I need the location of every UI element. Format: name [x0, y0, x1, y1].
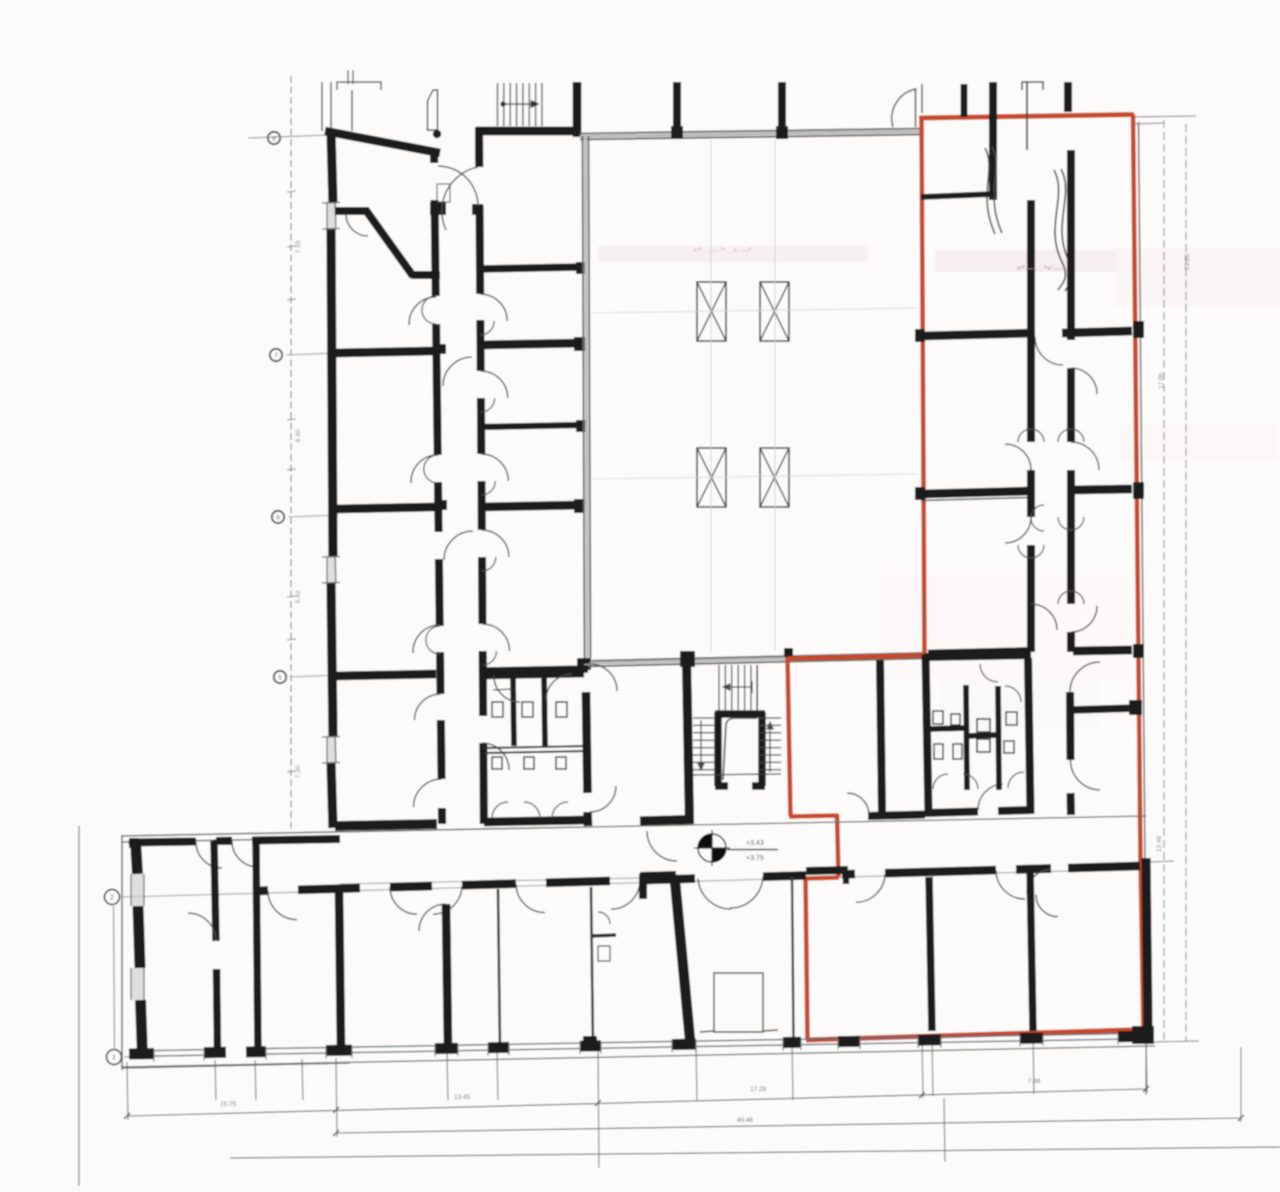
svg-text:29.05: 29.05: [1184, 253, 1191, 270]
svg-text:7: 7: [274, 352, 278, 359]
svg-text:1: 1: [112, 1054, 116, 1061]
svg-text:15.75: 15.75: [220, 1101, 237, 1108]
svg-text:17.28: 17.28: [750, 1086, 767, 1093]
svg-text:7.48: 7.48: [1028, 1078, 1041, 1085]
svg-text:17.05: 17.05: [1158, 372, 1165, 389]
svg-text:6: 6: [276, 514, 280, 521]
svg-text:+3.43: +3.43: [746, 840, 764, 847]
svg-text:+3.75: +3.75: [746, 855, 764, 862]
svg-text:7.30: 7.30: [295, 765, 302, 778]
svg-text:×º′—·…º×′—·: ×º′—·…º×′—·: [1016, 264, 1064, 273]
svg-text:13.46: 13.46: [1156, 835, 1163, 852]
svg-text:13.45: 13.45: [454, 1094, 471, 1101]
svg-text:45.46: 45.46: [737, 1117, 754, 1124]
svg-text:×º′…—·′º…×·—º: ×º′…—·′º…×·—º: [693, 246, 752, 255]
svg-text:5.40: 5.40: [295, 590, 302, 603]
svg-text:7.20: 7.20: [295, 240, 302, 253]
svg-text:8.40: 8.40: [295, 429, 302, 442]
svg-text:2: 2: [110, 894, 114, 901]
svg-text:5: 5: [278, 674, 282, 681]
